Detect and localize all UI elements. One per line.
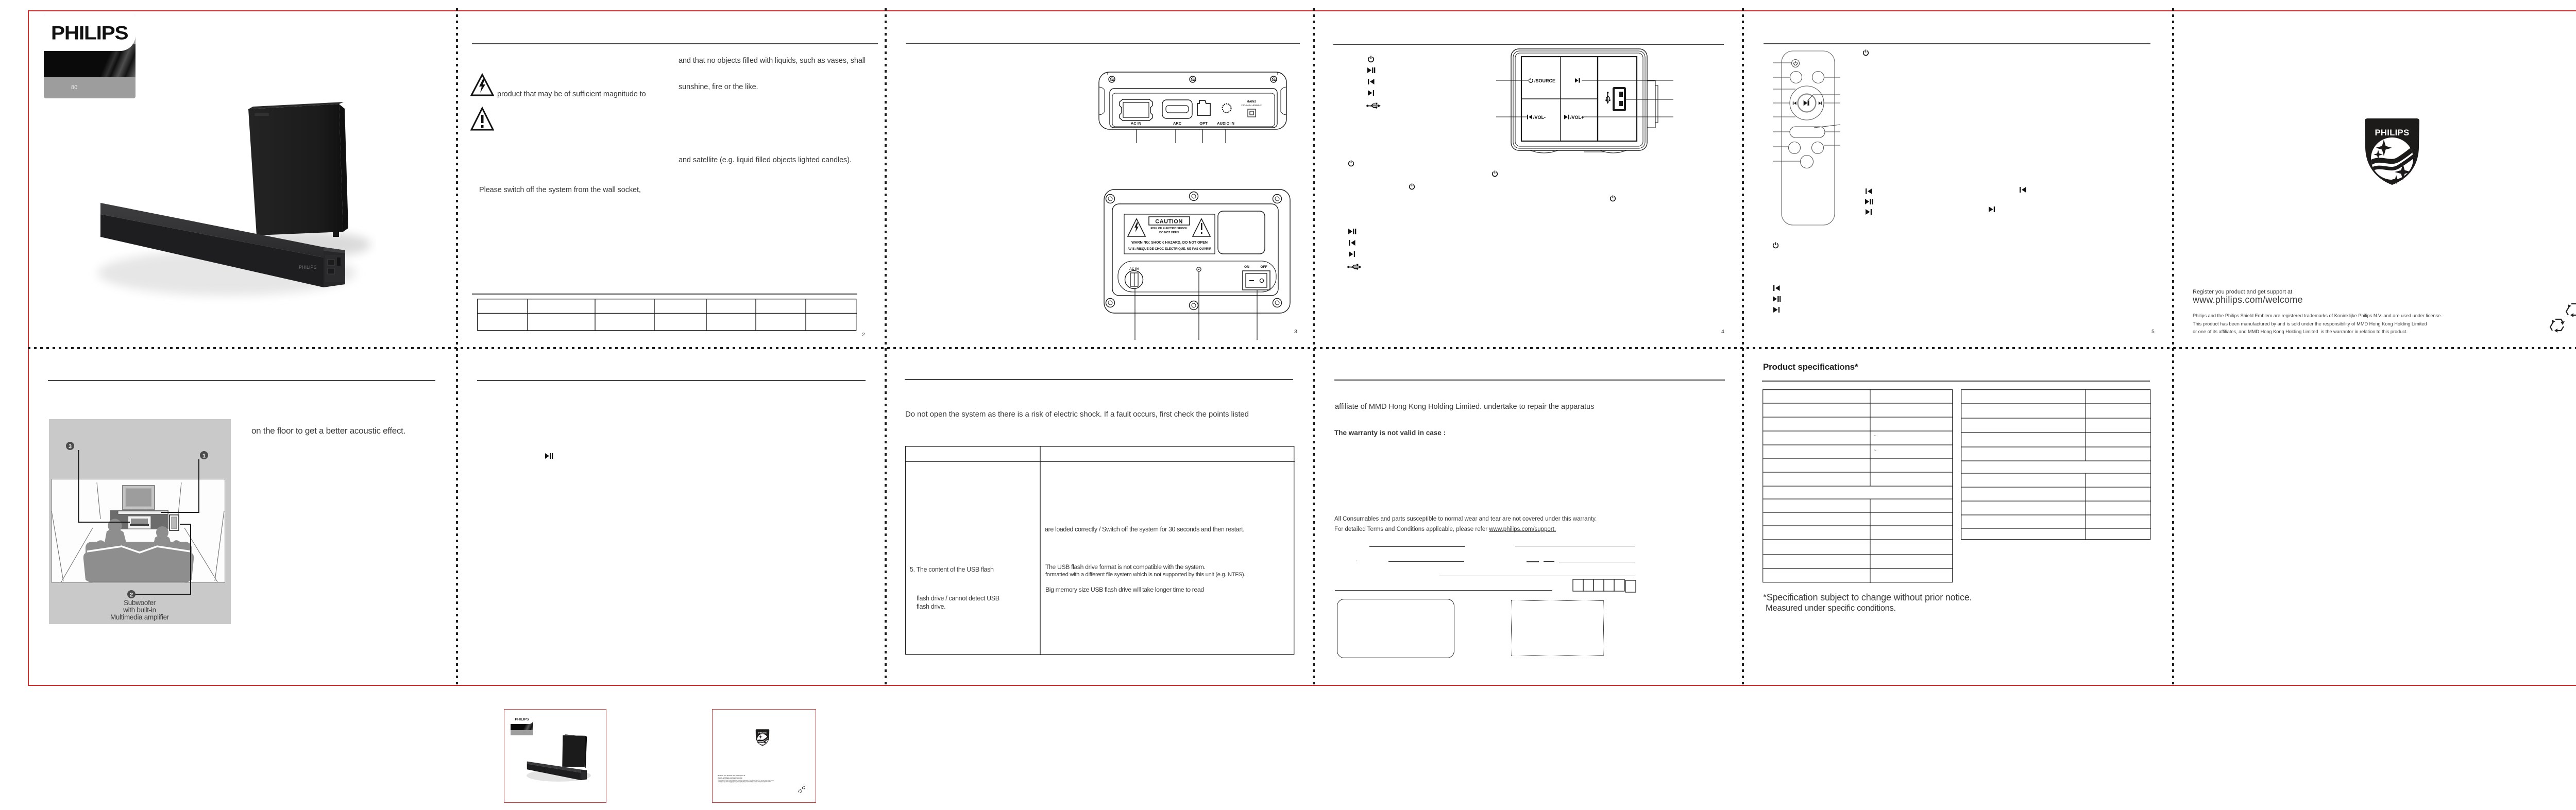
svg-text:PHILIPS: PHILIPS [299, 265, 317, 270]
svg-text:Multimedia amplifier: Multimedia amplifier [110, 613, 170, 621]
svg-text:AVIS: RISQUE DE CHOC ELECTRIQU: AVIS: RISQUE DE CHOC ELECTRIQUE, NE PAS … [1128, 247, 1212, 251]
svg-text:CAUTION: CAUTION [1155, 219, 1183, 225]
svg-text:DO NOT OPEN: DO NOT OPEN [1159, 231, 1179, 234]
svg-text:PHILIPS: PHILIPS [2375, 128, 2410, 137]
svg-text:AUDIO IN: AUDIO IN [1217, 121, 1234, 126]
svg-text:/SOURCE: /SOURCE [1534, 78, 1555, 83]
svg-text:ON: ON [1244, 265, 1249, 269]
svg-text:WARNING: SHOCK HAZARD, DO NOT: WARNING: SHOCK HAZARD, DO NOT OPEN [1131, 241, 1208, 245]
svg-text:~: ~ [1874, 433, 1876, 438]
svg-text:AC IN: AC IN [1131, 121, 1141, 126]
svg-text:OPT: OPT [1199, 121, 1208, 126]
svg-text:Subwoofer: Subwoofer [124, 599, 156, 607]
svg-text:RISK OF ELECTRIC SHOCK: RISK OF ELECTRIC SHOCK [1150, 227, 1187, 230]
svg-text:2: 2 [130, 592, 133, 598]
svg-text:/VOL-: /VOL- [1533, 115, 1546, 120]
svg-text:3: 3 [69, 444, 72, 450]
svg-text:MAINS: MAINS [1247, 100, 1257, 104]
svg-text:OFF: OFF [1260, 265, 1267, 269]
svg-text:220-240V~50/60Hz: 220-240V~50/60Hz [1241, 104, 1262, 107]
svg-text:~: ~ [1874, 447, 1876, 453]
svg-text:/VOL+: /VOL+ [1570, 115, 1584, 120]
svg-text:ARC: ARC [1173, 121, 1182, 126]
svg-text:PHILIPS: PHILIPS [758, 732, 767, 734]
svg-text:with built-in: with built-in [123, 606, 156, 614]
svg-text:1: 1 [202, 453, 206, 459]
